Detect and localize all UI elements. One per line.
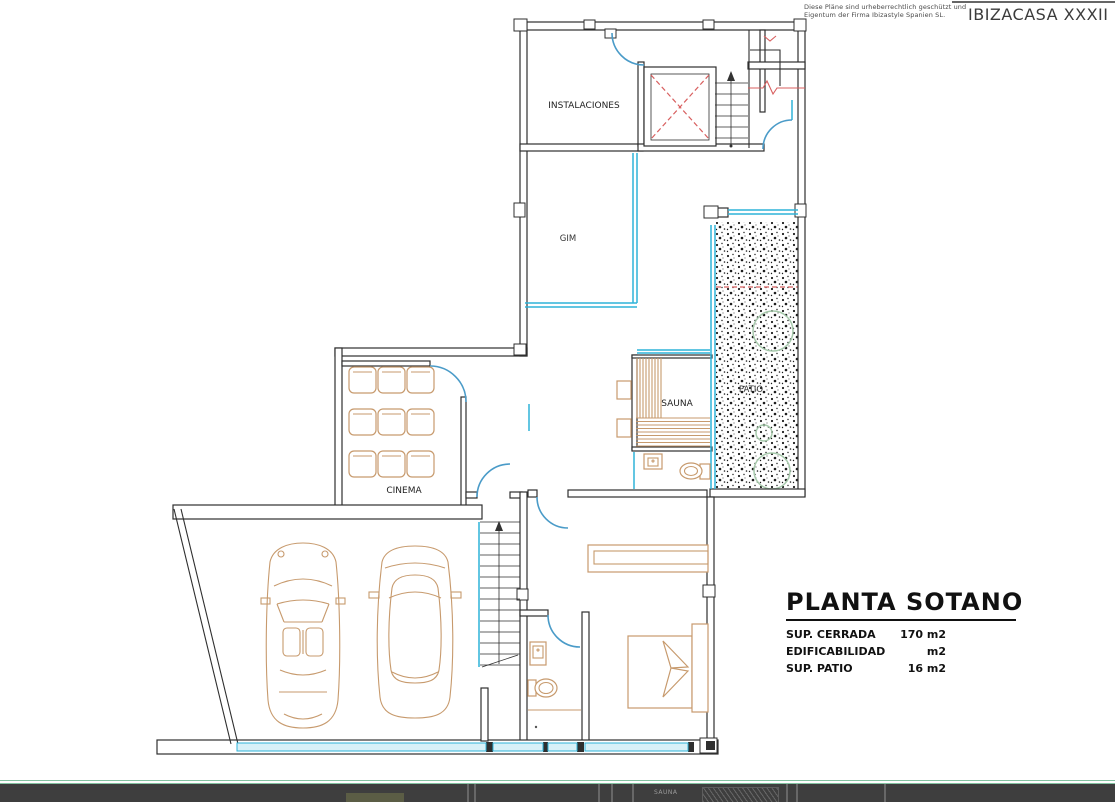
- car-coupe: [369, 546, 461, 718]
- toilet: [535, 679, 557, 697]
- room-label-gim: GIM: [560, 234, 576, 244]
- garage-slanted-wall: [174, 509, 238, 744]
- plan-title: PLANTA SOTANO: [786, 588, 1016, 621]
- red-tick: [764, 36, 776, 41]
- area-value: 16 m2: [898, 660, 946, 677]
- door-arc: [548, 615, 580, 647]
- area-row: SUP. CERRADA170 m2: [786, 626, 1016, 643]
- strip-line: [786, 784, 788, 802]
- door-arc: [763, 120, 792, 149]
- drain-dot: [535, 726, 537, 728]
- stairs-lower: [480, 521, 520, 667]
- room-cinema: [349, 367, 434, 477]
- room-label-patio: PATIO: [739, 385, 763, 395]
- patio-glass-wall: [711, 225, 715, 489]
- title-block: PLANTA SOTANO SUP. CERRADA170 m2 EDIFICA…: [786, 588, 1016, 677]
- strip-line: [467, 784, 469, 802]
- elevator-shaft: [644, 67, 716, 146]
- strip-block: [346, 793, 404, 802]
- area-value: 170 m2: [898, 626, 946, 643]
- strip-hatch: [702, 787, 779, 802]
- area-row: EDIFICABILIDADm2: [786, 643, 1016, 660]
- area-label: SUP. CERRADA: [786, 626, 898, 643]
- bedroom: [588, 545, 708, 712]
- bathroom: [528, 642, 581, 728]
- strip-line: [474, 784, 476, 802]
- patio-gravel: [716, 222, 798, 488]
- sauna-heater: [617, 381, 631, 399]
- stair-direction-arrow: [727, 71, 735, 81]
- strip-line: [884, 784, 886, 802]
- sauna-glass: [637, 350, 710, 353]
- washroom: [644, 454, 710, 479]
- room-label-cinema: CINEMA: [386, 486, 422, 496]
- room-label-instalaciones: INSTALACIONES: [548, 101, 620, 111]
- patio-top-window: [728, 210, 798, 214]
- window: [585, 743, 688, 751]
- area-row: SUP. PATIO16 m2: [786, 660, 1016, 677]
- door-arc: [537, 497, 568, 528]
- sauna-bench-steps: [636, 418, 710, 446]
- window: [493, 743, 543, 751]
- door-arc: [612, 33, 644, 65]
- area-value: m2: [898, 643, 946, 660]
- gim-glass-wall: [525, 303, 637, 307]
- door-arc: [477, 464, 510, 497]
- headboard: [692, 624, 708, 712]
- gim-glass-wall: [633, 153, 637, 303]
- stair-direction-arrow: [495, 521, 503, 531]
- car-convertible: [261, 543, 345, 728]
- strip-line: [598, 784, 600, 802]
- toilet: [680, 463, 702, 479]
- strip-sauna-label: SAUNA: [654, 789, 678, 796]
- window: [548, 743, 577, 751]
- strip-line: [796, 784, 798, 802]
- area-label: EDIFICABILIDAD: [786, 643, 898, 660]
- next-page-strip: SAUNA: [0, 784, 1115, 802]
- strip-line: [611, 784, 613, 802]
- section-break-line: [748, 81, 805, 94]
- sauna-bench-slats: [637, 358, 661, 418]
- sauna-heater: [617, 419, 631, 437]
- floorplan-sheet: Diese Pläne sind urheberrechtlich geschü…: [0, 0, 1115, 802]
- strip-line: [632, 784, 634, 802]
- wardrobe: [588, 545, 708, 572]
- room-label-sauna: SAUNA: [661, 399, 693, 409]
- garage-door-window: [237, 743, 486, 751]
- area-label: SUP. PATIO: [786, 660, 898, 677]
- patio: [716, 222, 798, 489]
